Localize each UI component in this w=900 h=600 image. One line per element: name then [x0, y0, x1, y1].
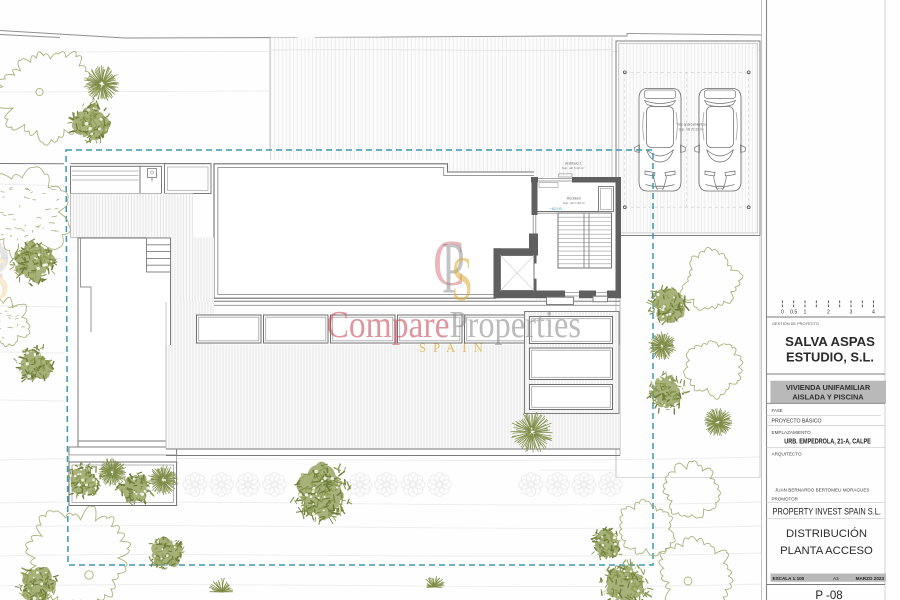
svg-text:PROMOTOR: PROMOTOR [772, 496, 799, 501]
svg-text:+62,00: +62,00 [550, 206, 563, 211]
svg-text:Tres aparcamientos: Tres aparcamientos [676, 123, 706, 127]
svg-text:Vestíbulo 2: Vestíbulo 2 [565, 162, 582, 166]
svg-text:PROPERTY INVEST SPAIN S.L.: PROPERTY INVEST SPAIN S.L. [773, 507, 882, 517]
svg-text:ARQUITECTO: ARQUITECTO [772, 452, 802, 457]
svg-text:S: S [0, 243, 12, 314]
svg-text:EMPLAZAMIENTO: EMPLAZAMIENTO [772, 430, 812, 435]
svg-text:A3: A3 [833, 576, 839, 581]
svg-text:4: 4 [872, 310, 875, 316]
svg-text:PROYECTO BÁSICO: PROYECTO BÁSICO [772, 418, 822, 425]
svg-text:2: 2 [827, 310, 830, 316]
svg-text:P -08: P -08 [815, 590, 842, 600]
svg-text:1: 1 [804, 310, 807, 316]
svg-text:SPAIN: SPAIN [419, 341, 490, 355]
svg-text:ESTUDIO, S.L.: ESTUDIO, S.L. [786, 350, 874, 365]
svg-text:Compare: Compare [327, 304, 450, 346]
svg-text:Recibidor: Recibidor [567, 197, 582, 201]
svg-text:MARZO 2023: MARZO 2023 [856, 576, 885, 581]
svg-text:DISTRIBUCIÓN: DISTRIBUCIÓN [786, 527, 867, 540]
svg-text:URB. EMPEDROLA, 21-A, CALPE: URB. EMPEDROLA, 21-A, CALPE [784, 439, 871, 446]
svg-text:Properties: Properties [450, 304, 582, 346]
svg-text:0.5: 0.5 [790, 310, 797, 316]
svg-text:Sup. útil 7.89 m²: Sup. útil 7.89 m² [563, 201, 586, 205]
svg-text:3: 3 [850, 310, 853, 316]
svg-text:VIVIENDA UNIFAMILIAR: VIVIENDA UNIFAMILIAR [786, 383, 871, 392]
svg-text:0: 0 [781, 310, 784, 316]
svg-text:ESCALA 1:100: ESCALA 1:100 [773, 576, 805, 581]
svg-text:AISLADA Y PISCINA: AISLADA Y PISCINA [792, 392, 864, 401]
svg-text:FASE: FASE [772, 408, 783, 413]
svg-text:JUAN BERNARDO BERTOMEU MORAGUE: JUAN BERNARDO BERTOMEU MORAGUES [775, 488, 870, 493]
svg-text:Sup. útil 3.20 m²: Sup. útil 3.20 m² [562, 166, 585, 170]
svg-text:SALVA ASPAS: SALVA ASPAS [785, 334, 875, 349]
svg-text:Sup. útil 29.33 m²: Sup. útil 29.33 m² [679, 128, 704, 132]
svg-text:PLANTA ACCESO: PLANTA ACCESO [780, 545, 873, 557]
svg-text:GESTIÓN DE PROYECTO: GESTIÓN DE PROYECTO [772, 321, 819, 326]
